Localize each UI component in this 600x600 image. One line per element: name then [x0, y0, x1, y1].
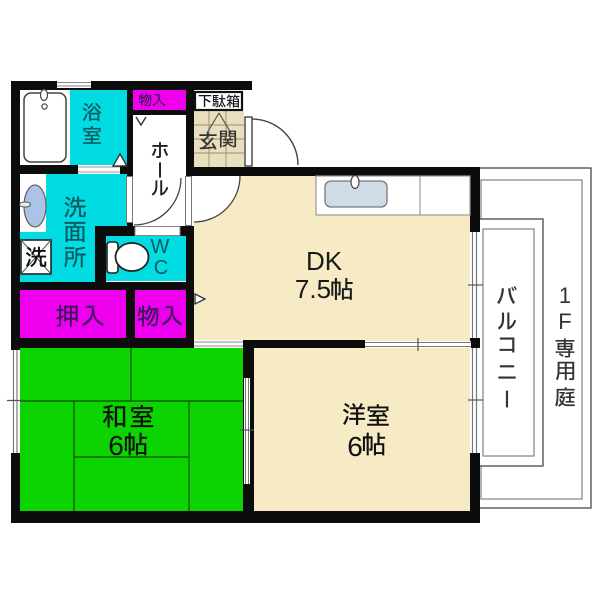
svg-text:1: 1 — [559, 283, 571, 308]
svg-text:C: C — [154, 257, 168, 279]
svg-text:6: 6 — [347, 431, 363, 462]
svg-text:W: W — [151, 236, 170, 258]
svg-text:DK: DK — [306, 246, 343, 276]
svg-text:7.5: 7.5 — [295, 274, 331, 304]
svg-text:6: 6 — [108, 430, 124, 461]
svg-text:F: F — [558, 309, 571, 334]
